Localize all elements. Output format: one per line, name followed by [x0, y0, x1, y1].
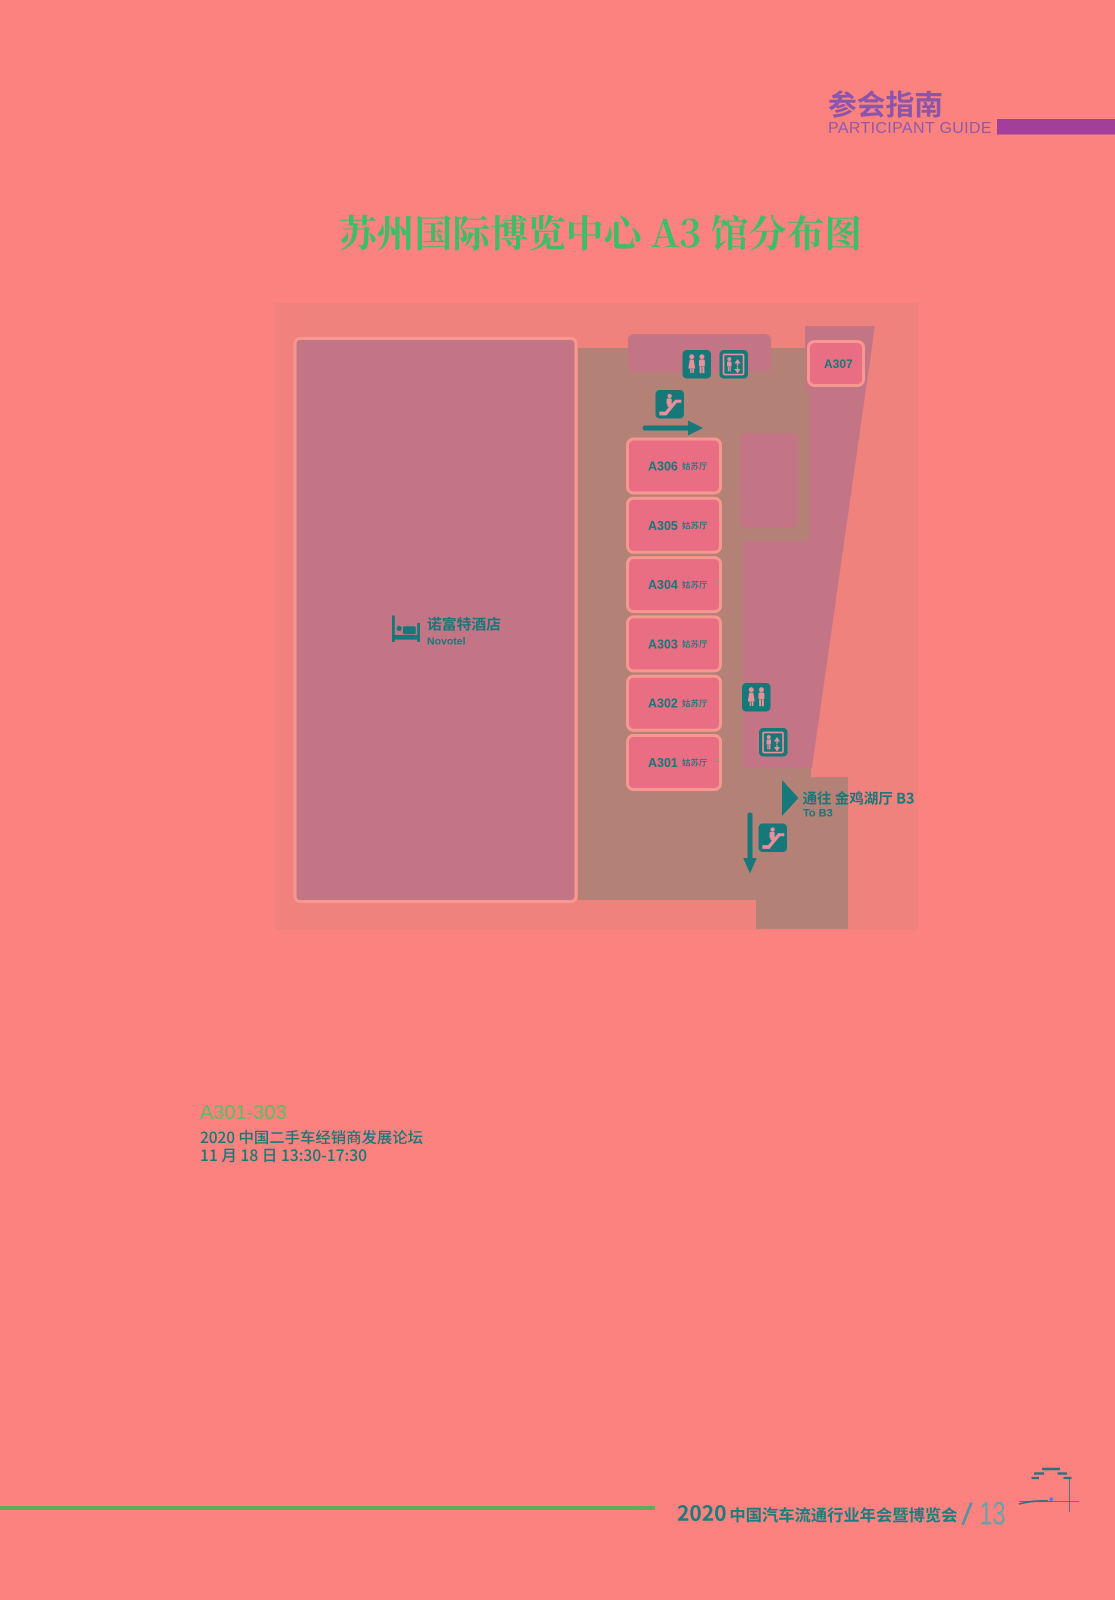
svg-text:A307: A307	[824, 357, 853, 371]
svg-text:A302: A302	[648, 697, 678, 711]
svg-text:A303: A303	[648, 637, 678, 651]
svg-text:Novotel: Novotel	[427, 636, 466, 648]
svg-text:A306: A306	[648, 460, 678, 474]
svg-text:A305: A305	[648, 519, 678, 533]
svg-text:A304: A304	[648, 578, 678, 592]
svg-text:PARTICIPANT GUIDE: PARTICIPANT GUIDE	[828, 120, 992, 137]
svg-text:13: 13	[980, 1495, 1006, 1531]
svg-text:A301: A301	[648, 756, 678, 770]
svg-text:A301-303: A301-303	[200, 1102, 287, 1124]
svg-text:To B3: To B3	[803, 808, 833, 820]
